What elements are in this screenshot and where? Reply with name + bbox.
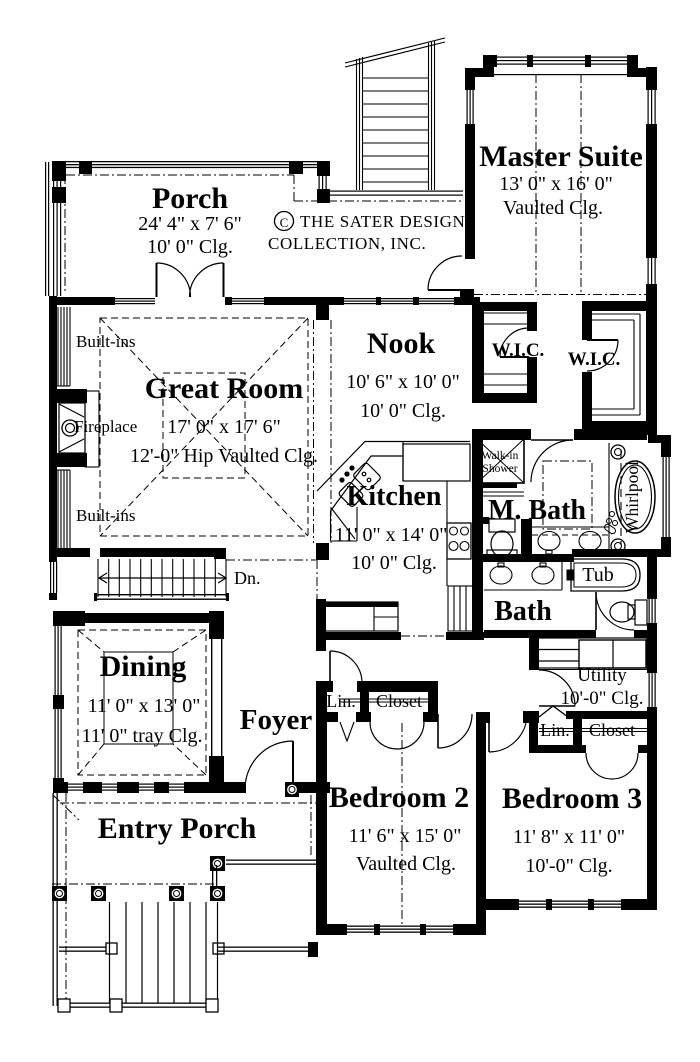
svg-text:11' 0" x 13' 0": 11' 0" x 13' 0"	[88, 695, 201, 717]
svg-text:Bedroom 3: Bedroom 3	[502, 782, 642, 815]
svg-text:10' 0" Clg.: 10' 0" Clg.	[147, 236, 233, 258]
svg-text:Lin.: Lin.	[326, 691, 356, 711]
svg-text:Kitchen: Kitchen	[347, 481, 442, 512]
svg-text:Closet: Closet	[376, 691, 422, 711]
svg-text:Built-ins: Built-ins	[76, 506, 136, 525]
svg-text:Vaulted Clg.: Vaulted Clg.	[503, 197, 603, 219]
svg-text:W.I.C.: W.I.C.	[492, 340, 545, 361]
svg-text:Tub: Tub	[582, 564, 614, 586]
svg-text:Lin.: Lin.	[540, 720, 570, 740]
svg-text:11' 0" tray Clg.: 11' 0" tray Clg.	[81, 725, 202, 747]
svg-text:24' 4" x 7' 6": 24' 4" x 7' 6"	[138, 213, 242, 235]
svg-text:Bath: Bath	[494, 596, 552, 627]
svg-text:11' 6" x 15' 0": 11' 6" x 15' 0"	[349, 825, 462, 847]
svg-text:Dining: Dining	[100, 650, 187, 683]
svg-text:Porch: Porch	[152, 182, 228, 215]
svg-text:10'-0" Clg.: 10'-0" Clg.	[561, 688, 644, 709]
svg-text:C: C	[280, 215, 289, 230]
svg-text:Closet: Closet	[589, 720, 635, 740]
svg-text:Built-ins: Built-ins	[76, 332, 136, 351]
svg-text:10' 6" x 10' 0": 10' 6" x 10' 0"	[346, 371, 460, 393]
svg-text:12'-0" Hip Vaulted Clg.: 12'-0" Hip Vaulted Clg.	[130, 445, 318, 467]
svg-text:17' 0" x 17' 6": 17' 0" x 17' 6"	[167, 416, 281, 438]
svg-text:11' 0" x 14' 0": 11' 0" x 14' 0"	[335, 524, 448, 546]
svg-text:Whirlpool: Whirlpool	[622, 461, 642, 533]
svg-text:10' 0" Clg.: 10' 0" Clg.	[351, 552, 437, 574]
svg-text:Bedroom 2: Bedroom 2	[329, 781, 469, 814]
svg-text:Dn.: Dn.	[234, 568, 261, 588]
svg-text:10'-0" Clg.: 10'-0" Clg.	[525, 855, 612, 877]
svg-text:Utility: Utility	[577, 665, 627, 686]
svg-text:THE SATER DESIGN: THE SATER DESIGN	[300, 212, 465, 231]
svg-text:Entry Porch: Entry Porch	[98, 812, 257, 845]
svg-text:M. Bath: M. Bath	[488, 495, 586, 526]
svg-text:Fireplace: Fireplace	[74, 417, 137, 436]
svg-text:Walk-in: Walk-in	[482, 450, 519, 462]
svg-text:COLLECTION, INC.: COLLECTION, INC.	[268, 234, 426, 253]
svg-text:Shower: Shower	[482, 463, 517, 475]
svg-text:Foyer: Foyer	[240, 704, 313, 736]
svg-text:11' 8" x 11' 0": 11' 8" x 11' 0"	[513, 826, 625, 848]
svg-text:Great Room: Great Room	[145, 372, 304, 405]
svg-text:W.I.C.: W.I.C.	[568, 349, 621, 370]
svg-text:Vaulted Clg.: Vaulted Clg.	[356, 853, 456, 875]
svg-text:10' 0" Clg.: 10' 0" Clg.	[360, 400, 446, 422]
svg-text:13' 0" x 16' 0": 13' 0" x 16' 0"	[499, 173, 613, 195]
svg-text:Master Suite: Master Suite	[479, 140, 643, 173]
svg-text:Nook: Nook	[367, 327, 436, 360]
